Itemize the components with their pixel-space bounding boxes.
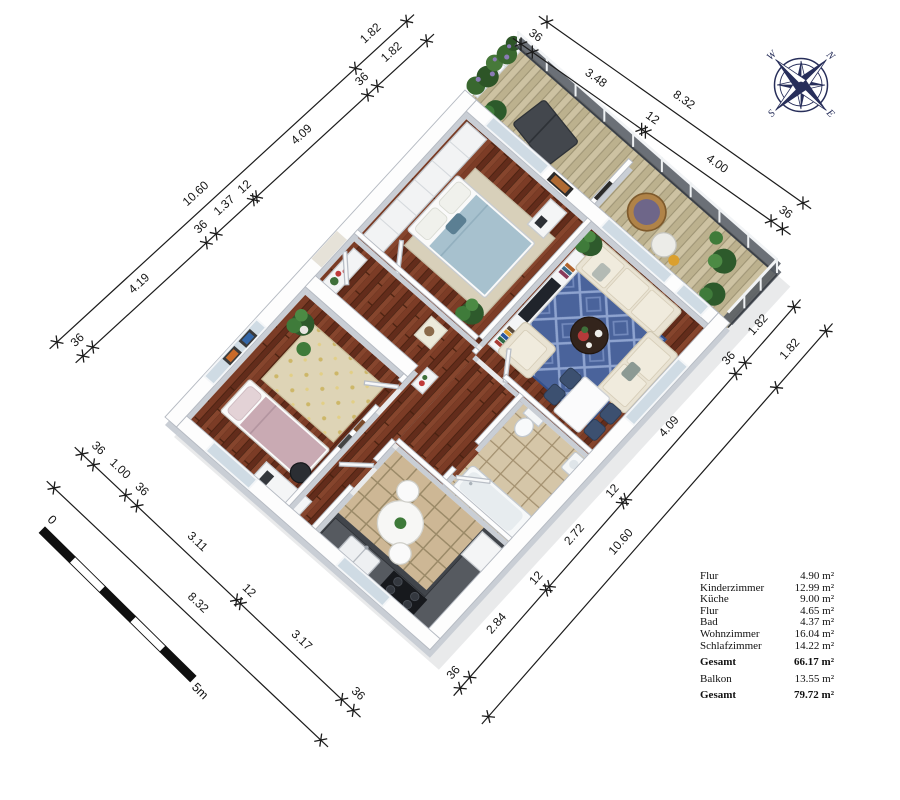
room-area-legend: Flur4.90 m²Kinderzimmer12.99 m²Küche9.00… — [700, 571, 834, 702]
dim-tick — [541, 15, 553, 28]
dim-label: 4.19 — [126, 270, 153, 296]
dim-label: 1.82 — [378, 39, 405, 65]
legend-row: Wohnzimmer16.04 m² — [700, 629, 834, 641]
dim-label: 36 — [444, 662, 464, 682]
dim-label: 36 — [776, 202, 795, 221]
scale-segment — [130, 616, 166, 652]
legend-row: Schlafzimmer14.22 m² — [700, 641, 834, 653]
dim-label: 12 — [643, 108, 662, 127]
legend-row: Gesamt79.72 m² — [700, 690, 834, 702]
dim-label: 36 — [89, 438, 109, 458]
dim-label: 36 — [349, 684, 369, 704]
scale-segment — [39, 527, 75, 563]
dim-label: 3.11 — [185, 529, 211, 555]
scale-segment — [100, 587, 136, 623]
compass-rose: NESW — [765, 48, 837, 120]
scale-segment — [69, 557, 105, 593]
dim-label: 12 — [235, 177, 255, 197]
dim-tick — [776, 222, 788, 235]
dim-label: 36 — [191, 217, 211, 237]
dim-label: 8.32 — [185, 589, 212, 615]
legend-row: Balkon13.55 m² — [700, 674, 834, 686]
dim-label: 3.17 — [289, 627, 316, 653]
dim-label: 36 — [132, 479, 152, 499]
legend-row: Flur4.90 m² — [700, 571, 834, 583]
dim-label: 1.00 — [107, 455, 134, 481]
dim-label: 1.82 — [357, 20, 384, 46]
dim-tick — [797, 196, 809, 209]
scale-end-label: 5m — [189, 680, 211, 702]
dim-label: 4.00 — [704, 151, 731, 176]
legend-row: Gesamt66.17 m² — [700, 657, 834, 669]
scale-start-label: 0 — [45, 512, 60, 527]
dim-label: 36 — [68, 330, 88, 350]
dim-tick — [765, 214, 777, 227]
dim-label: 12 — [240, 581, 260, 601]
dim-label: 4.09 — [288, 121, 315, 147]
dim-label: 3.48 — [583, 65, 610, 90]
dim-label: 8.32 — [671, 87, 698, 112]
kitchen-door — [339, 462, 373, 467]
scale-segment — [160, 646, 196, 682]
dim-label: 1.82 — [776, 335, 802, 362]
dim-label: 1.37 — [211, 192, 238, 218]
dim-label: 36 — [352, 69, 372, 89]
floorplan-page: 10.601.82364.19361.37124.09361.828.32363… — [0, 0, 900, 800]
